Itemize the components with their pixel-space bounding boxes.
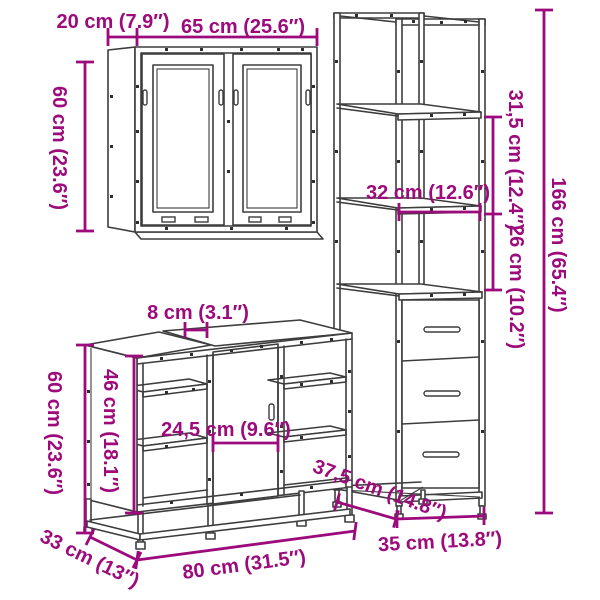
door-handle (269, 404, 274, 420)
label-sink-gap: 8 cm (3.1″) (147, 302, 249, 324)
label-tall-shelf-depth: 32 cm (12.6″) (366, 182, 490, 204)
label-wall-depth: 20 cm (7.9″) (57, 11, 170, 33)
label-wall-width: 65 cm (25.6″) (181, 16, 305, 38)
drawer-handle (424, 391, 460, 396)
door-handle (306, 90, 310, 105)
wall-cabinet-side-panel (108, 47, 135, 232)
wall-cabinet-bottom-panel (135, 232, 323, 239)
drawer-handle (424, 327, 460, 332)
tall-cabinet (333, 13, 486, 519)
wall-cabinet (108, 47, 323, 239)
dim-line-wall-height (76, 62, 94, 231)
label-wall-height: 60 cm (23.6″) (48, 86, 70, 210)
tall-cabinet-drawers (402, 300, 479, 488)
label-tall-upper-section: 31,5 cm (12.4″) (504, 90, 526, 231)
product-dimension-diagram: 20 cm (7.9″) 65 cm (25.6″) 60 cm (23.6″)… (0, 0, 600, 600)
door-handle (234, 90, 238, 105)
label-sink-height: 60 cm (23.6″) (43, 371, 65, 495)
diagram-svg: 20 cm (7.9″) 65 cm (25.6″) 60 cm (23.6″)… (0, 0, 600, 600)
door-handle (143, 90, 147, 105)
label-tall-middle-section: 26 cm (10.2″) (505, 225, 527, 349)
drawer-handle (423, 452, 459, 457)
label-sink-interior-height: 46 cm (18.1″) (99, 369, 121, 493)
label-tall-height: 166 cm (65.4″) (547, 177, 569, 312)
label-tall-width: 35 cm (13.8″) (378, 528, 503, 556)
door-handle (219, 90, 223, 105)
label-sink-door-width: 24,5 cm (9.6″) (161, 419, 291, 441)
